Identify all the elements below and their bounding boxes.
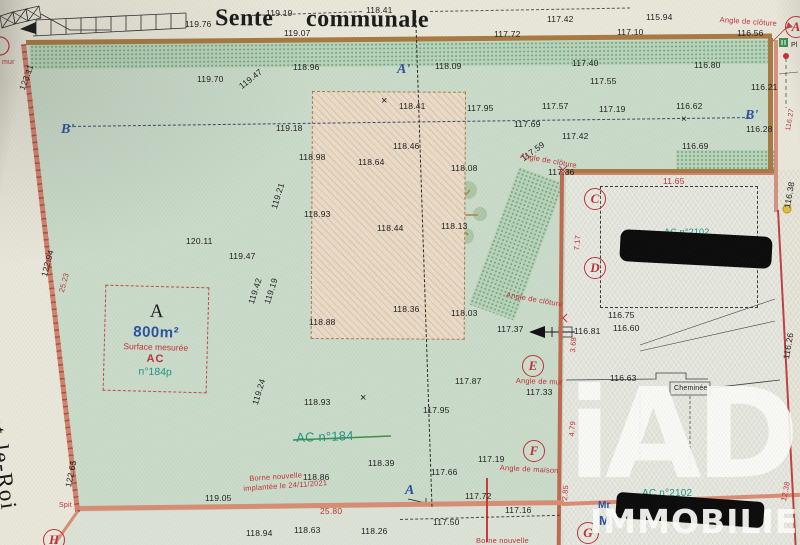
watermark-subtitle: IMMOBILIER xyxy=(590,502,800,541)
cut-point-circle xyxy=(0,37,9,55)
hedge-strip-right xyxy=(676,150,776,171)
path-arrow-icon xyxy=(20,22,36,34)
cadastral-survey-plan: Sente communale de Nogent-le-Roi A 800m²… xyxy=(0,0,800,545)
boundary-right-top xyxy=(768,38,773,174)
parcel-a-box: A 800m² Surface mesurée AC n°184p xyxy=(103,285,210,394)
parcel-surface-label: Surface mesurée xyxy=(123,341,188,353)
boundary-neighbor-top-pink xyxy=(566,173,774,175)
parcel-area: 800m² xyxy=(133,323,179,341)
path-ladder-symbol xyxy=(33,13,186,36)
boundary-right-edge xyxy=(774,40,778,212)
watermark-brand: iAD xyxy=(568,372,793,497)
parcel-letter: A xyxy=(150,300,164,322)
green-badge-icon xyxy=(779,38,788,47)
borne-leader-line xyxy=(486,478,488,542)
hatched-zone xyxy=(311,91,466,340)
red-dot-marker xyxy=(783,53,789,59)
parcel-number: n°184p xyxy=(138,365,172,378)
parcel-section: AC xyxy=(146,352,164,364)
street-name-top: Sente communale xyxy=(215,5,429,34)
